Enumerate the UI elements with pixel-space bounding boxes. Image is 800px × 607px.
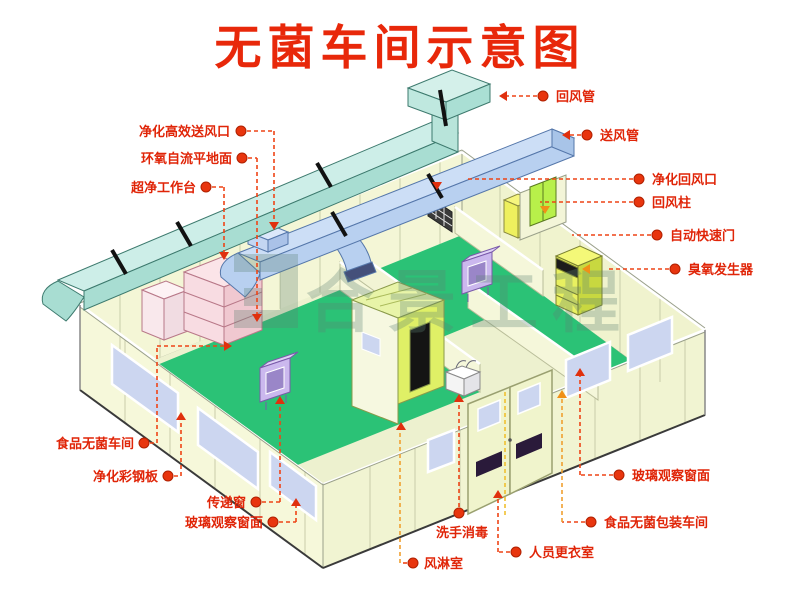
label-food-sterile-workshop: 食品无菌车间 (56, 436, 134, 451)
label-clean-bench: 超净工作台 (131, 180, 196, 195)
label-hand-wash: 洗手消毒 (436, 525, 488, 540)
label-hepa-supply-outlet: 净化高效送风口 (139, 124, 230, 139)
label-staff-changing-room: 人员更衣室 (529, 545, 594, 560)
page-title: 无菌车间示意图 (215, 21, 586, 74)
watermark-text: 合景工程 (306, 265, 634, 341)
label-purification-steel-panel: 净化彩钢板 (93, 469, 159, 484)
label-return-air-column: 回风柱 (652, 195, 691, 210)
label-air-shower: 风淋室 (424, 556, 463, 571)
sterile-workshop-diagram: 无菌车间示意图 (0, 0, 800, 607)
label-ozone-generator: 臭氧发生器 (688, 262, 754, 277)
label-glass-window-left: 玻璃观察窗面 (185, 515, 263, 530)
watermark: 合景工程 (234, 254, 634, 341)
label-packing-workshop: 食品无菌包装车间 (604, 515, 708, 530)
label-return-air-duct: 回风管 (556, 89, 595, 104)
label-pass-window: 传递窗 (206, 495, 246, 510)
diagram-canvas: 无菌车间示意图 (0, 0, 800, 607)
label-epoxy-floor: 环氧自流平地面 (141, 151, 232, 166)
label-glass-window-right: 玻璃观察窗面 (632, 468, 710, 483)
label-purified-return-air-inlet: 净化回风口 (652, 172, 717, 187)
label-supply-air-duct: 送风管 (599, 128, 639, 143)
label-automatic-quick-door: 自动快速门 (670, 228, 735, 243)
